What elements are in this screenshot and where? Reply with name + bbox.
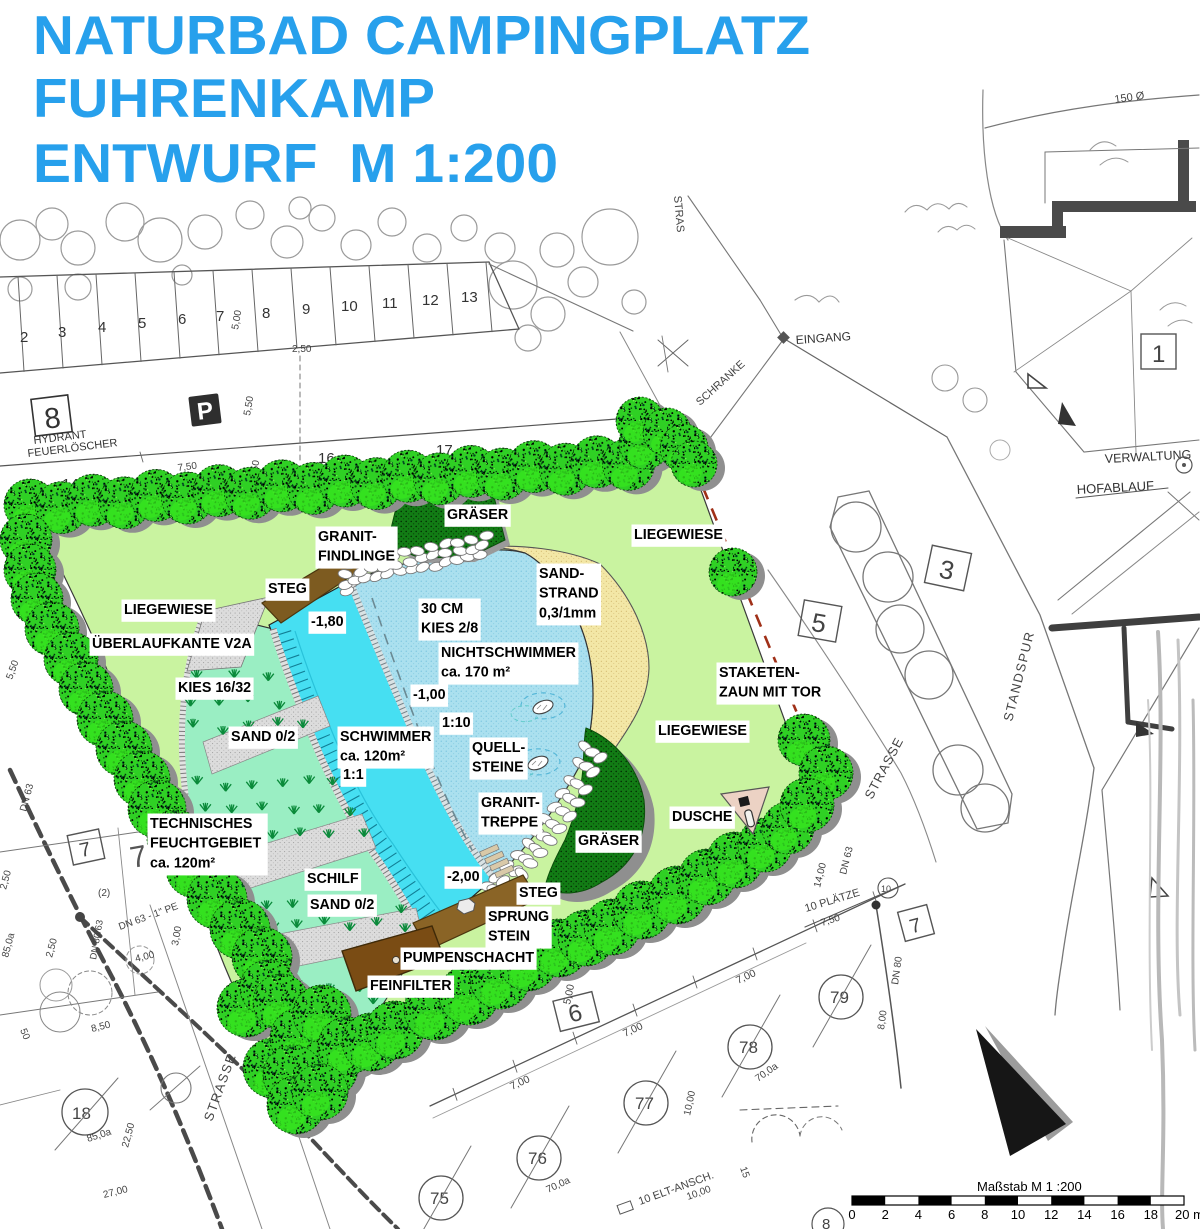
svg-text:KIES 2/8: KIES 2/8 xyxy=(421,621,478,637)
svg-text:GRÄSER: GRÄSER xyxy=(578,832,640,849)
svg-text:SCHILF: SCHILF xyxy=(307,871,359,887)
svg-text:NICHTSCHWIMMER: NICHTSCHWIMMER xyxy=(441,645,577,661)
svg-text:SCHWIMMER: SCHWIMMER xyxy=(340,729,432,745)
svg-text:8: 8 xyxy=(981,1207,988,1222)
svg-text:6: 6 xyxy=(948,1207,955,1222)
svg-text:20 m: 20 m xyxy=(1175,1207,1200,1222)
svg-text:-1,80: -1,80 xyxy=(311,614,344,630)
svg-text:STRAND: STRAND xyxy=(539,586,599,602)
svg-text:10: 10 xyxy=(1011,1207,1025,1222)
svg-text:7: 7 xyxy=(216,308,224,325)
svg-text:FEUCHTGEBIET: FEUCHTGEBIET xyxy=(150,836,261,852)
svg-text:NATURBAD CAMPINGPLATZ: NATURBAD CAMPINGPLATZ xyxy=(33,4,810,66)
svg-text:SAND-: SAND- xyxy=(539,566,585,582)
svg-text:ca. 120m²: ca. 120m² xyxy=(150,855,215,871)
svg-text:78: 78 xyxy=(739,1038,758,1057)
svg-text:GRÄSER: GRÄSER xyxy=(447,506,509,523)
svg-text:13: 13 xyxy=(461,289,478,306)
svg-text:PUMPENSCHACHT: PUMPENSCHACHT xyxy=(403,950,534,966)
svg-text:10: 10 xyxy=(341,298,358,315)
svg-text:-1,00: -1,00 xyxy=(413,687,446,703)
svg-text:GRANIT-: GRANIT- xyxy=(318,529,377,545)
svg-text:SPRUNG: SPRUNG xyxy=(488,909,549,925)
svg-text:12: 12 xyxy=(422,292,439,309)
svg-text:18: 18 xyxy=(1144,1207,1158,1222)
svg-text:0,3/1mm: 0,3/1mm xyxy=(539,605,596,621)
svg-text:11: 11 xyxy=(382,295,398,312)
svg-text:QUELL-: QUELL- xyxy=(472,740,525,756)
svg-text:ENTWURF M 1:200: ENTWURF M 1:200 xyxy=(33,132,558,194)
svg-text:STEINE: STEINE xyxy=(472,760,524,776)
svg-text:FUHRENKAMP: FUHRENKAMP xyxy=(33,67,435,129)
svg-text:6: 6 xyxy=(178,311,186,328)
svg-text:9: 9 xyxy=(302,301,310,318)
svg-text:12: 12 xyxy=(1044,1207,1058,1222)
svg-text:(2): (2) xyxy=(98,888,110,899)
svg-text:3: 3 xyxy=(58,324,66,341)
svg-text:5: 5 xyxy=(138,315,146,332)
svg-text:79: 79 xyxy=(830,988,849,1007)
svg-text:ca. 120m²: ca. 120m² xyxy=(340,749,405,765)
svg-text:1:10: 1:10 xyxy=(442,715,471,731)
svg-text:2: 2 xyxy=(882,1207,889,1222)
svg-text:STEG: STEG xyxy=(519,885,558,901)
svg-text:14: 14 xyxy=(1077,1207,1091,1222)
svg-text:8: 8 xyxy=(262,305,270,322)
svg-text:STEG: STEG xyxy=(268,581,307,597)
svg-text:P: P xyxy=(196,397,215,426)
svg-text:75: 75 xyxy=(430,1189,449,1208)
svg-text:0: 0 xyxy=(848,1207,855,1222)
svg-text:4: 4 xyxy=(915,1207,922,1222)
svg-text:LIEGEWIESE: LIEGEWIESE xyxy=(634,527,723,543)
svg-text:LIEGEWIESE: LIEGEWIESE xyxy=(658,723,747,739)
svg-text:STEIN: STEIN xyxy=(488,929,530,945)
svg-text:GRANIT-: GRANIT- xyxy=(481,795,540,811)
svg-text:1:1: 1:1 xyxy=(343,767,364,783)
svg-text:1: 1 xyxy=(1152,341,1165,368)
svg-text:-2,00: -2,00 xyxy=(447,869,480,885)
svg-text:ZAUN MIT TOR: ZAUN MIT TOR xyxy=(719,685,822,701)
svg-text:LIEGEWIESE: LIEGEWIESE xyxy=(124,602,213,618)
svg-text:16: 16 xyxy=(1110,1207,1124,1222)
svg-text:FEINFILTER: FEINFILTER xyxy=(370,978,452,994)
svg-text:TECHNISCHES: TECHNISCHES xyxy=(150,816,252,832)
svg-text:FINDLINGE: FINDLINGE xyxy=(318,549,395,565)
svg-text:ca. 170 m²: ca. 170 m² xyxy=(441,665,510,681)
svg-text:2,50: 2,50 xyxy=(292,344,312,355)
svg-text:77: 77 xyxy=(635,1094,654,1113)
svg-text:Maßstab M 1 :200: Maßstab M 1 :200 xyxy=(977,1179,1082,1194)
svg-text:4: 4 xyxy=(98,319,106,336)
svg-text:30 CM: 30 CM xyxy=(421,601,463,617)
svg-text:SAND 0/2: SAND 0/2 xyxy=(231,729,295,745)
svg-text:SAND 0/2: SAND 0/2 xyxy=(310,897,374,913)
svg-text:KIES 16/32: KIES 16/32 xyxy=(178,680,251,696)
svg-text:TREPPE: TREPPE xyxy=(481,815,538,831)
svg-text:2: 2 xyxy=(20,329,28,346)
svg-text:ÜBERLAUFKANTE V2A: ÜBERLAUFKANTE V2A xyxy=(92,635,252,652)
svg-text:DUSCHE: DUSCHE xyxy=(672,809,732,825)
svg-text:76: 76 xyxy=(528,1149,547,1168)
svg-text:8: 8 xyxy=(822,1216,830,1229)
svg-text:STAKETEN-: STAKETEN- xyxy=(719,665,800,681)
